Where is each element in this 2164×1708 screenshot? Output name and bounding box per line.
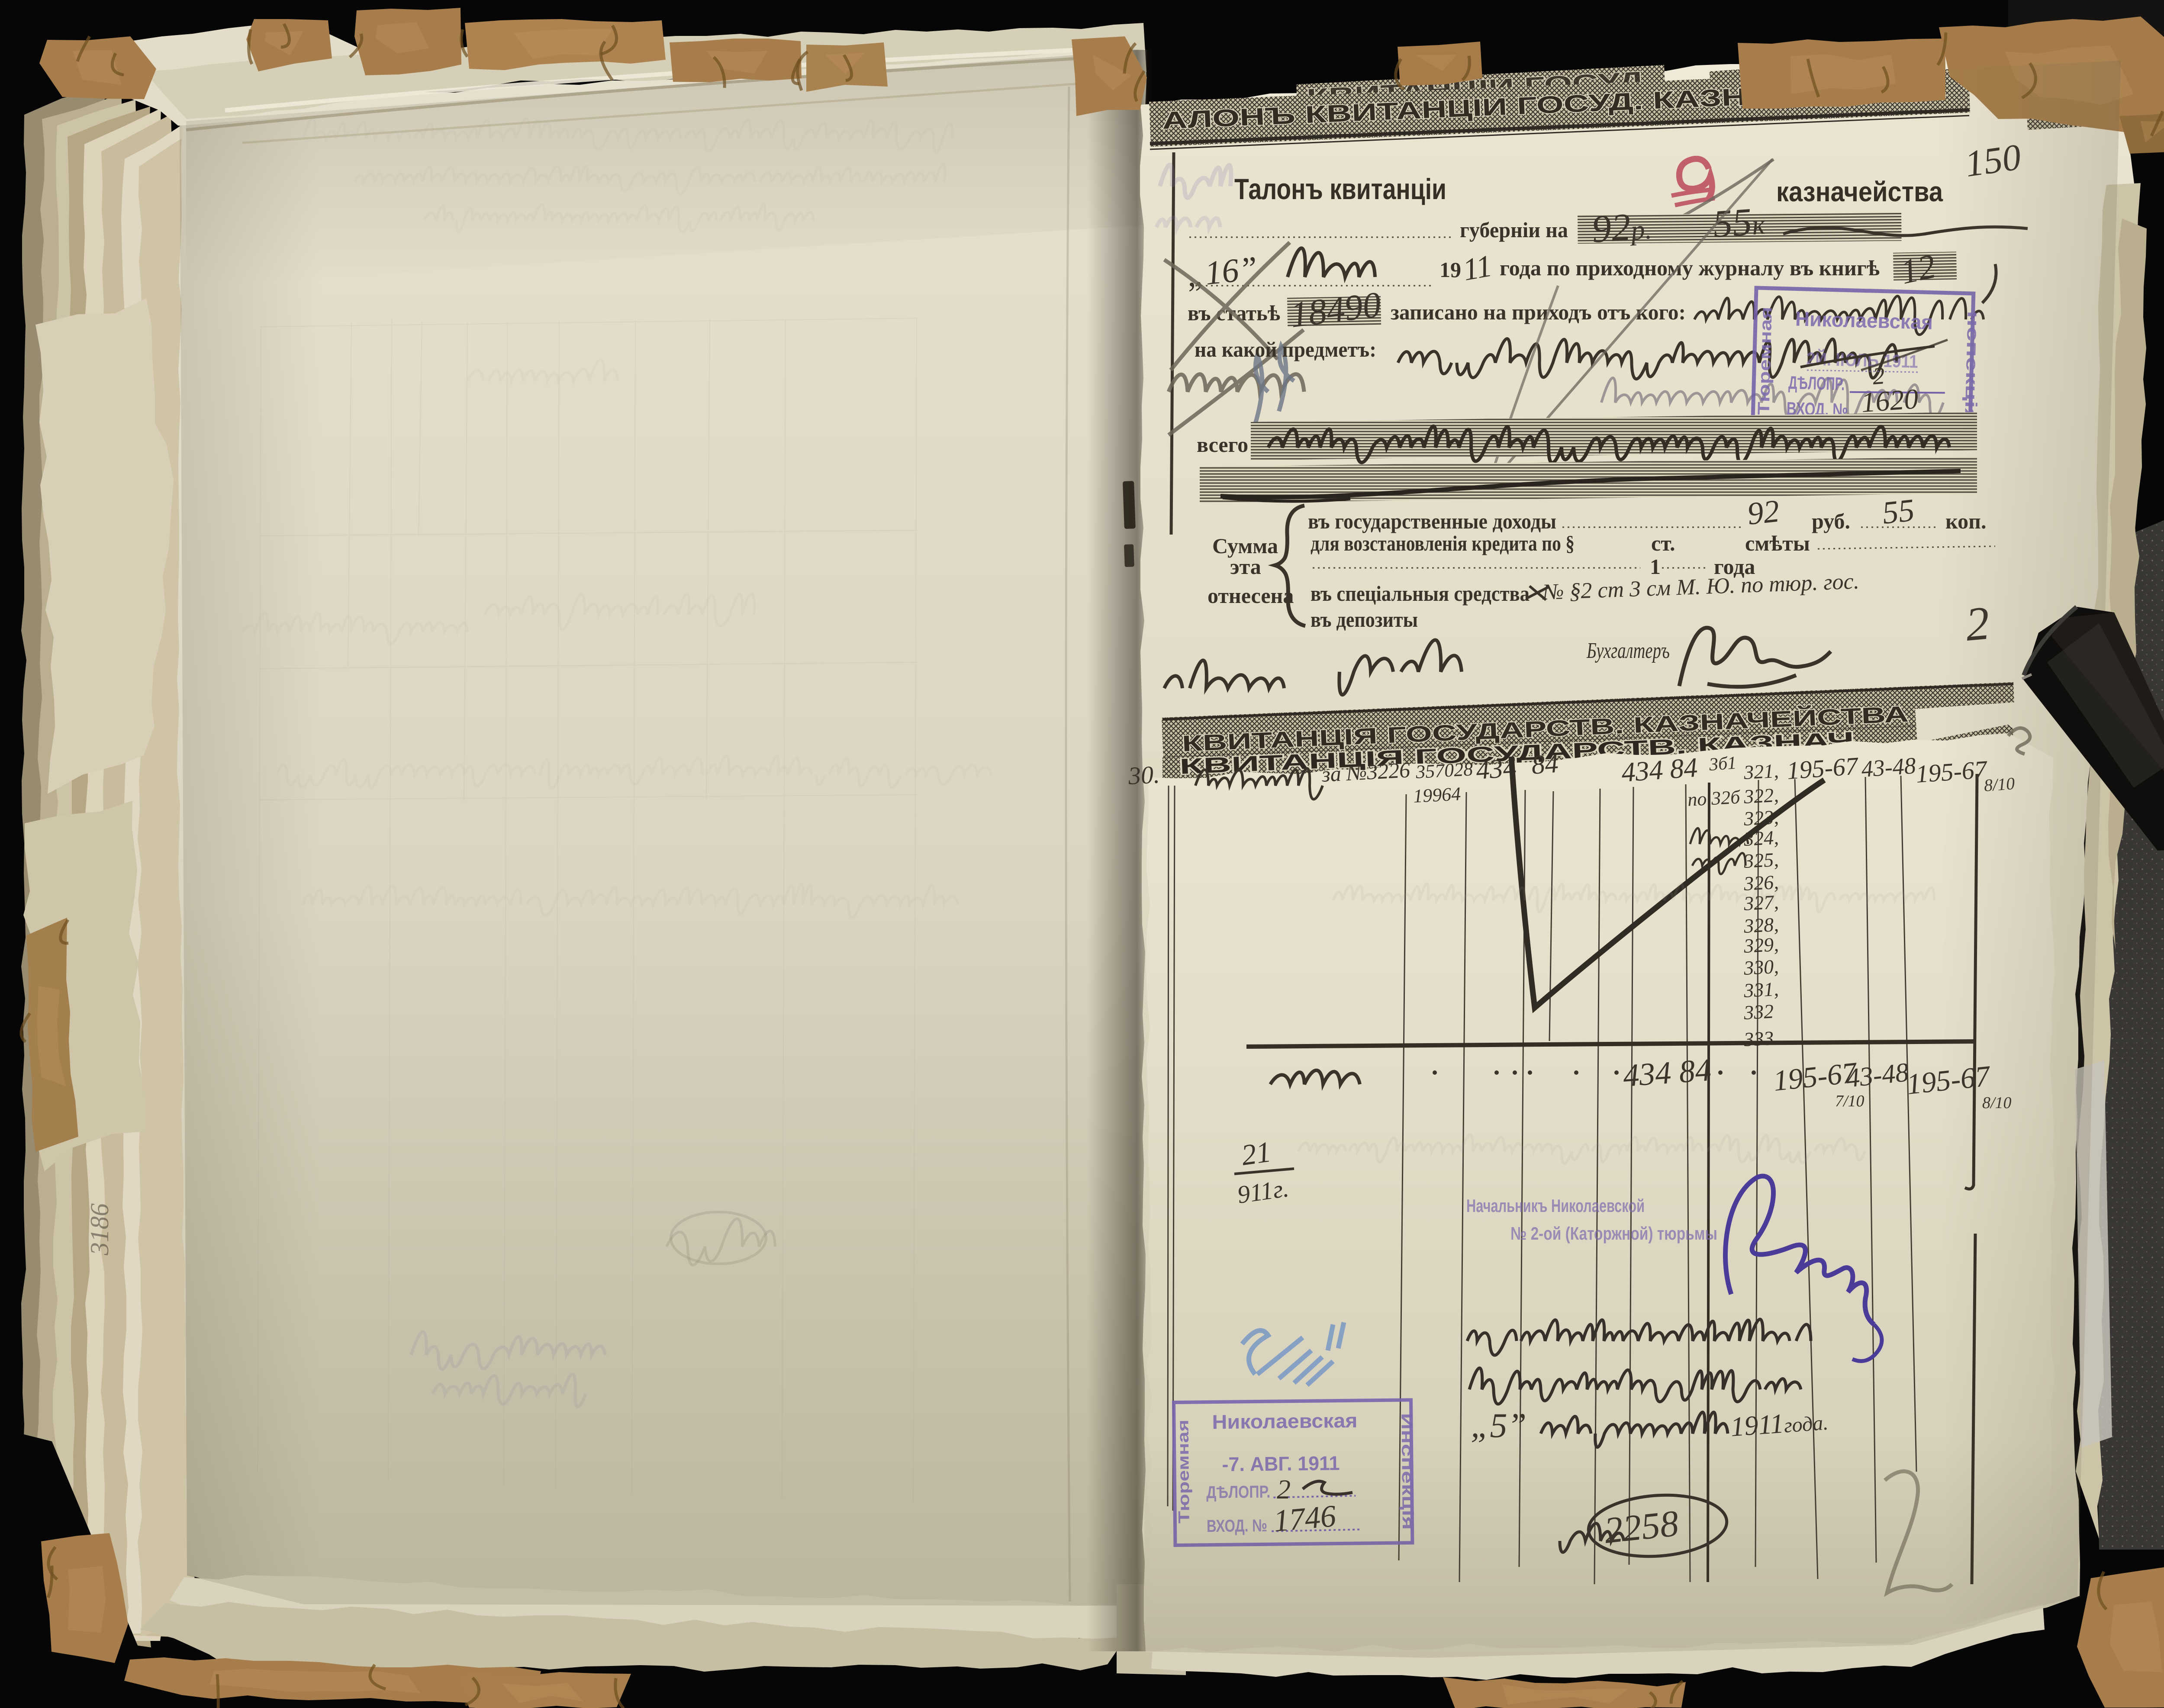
svg-text:года по приходному журналу въ: года по приходному журналу въ книгѣ [1500, 256, 1880, 280]
svg-text:за №3226: за №3226 [1321, 757, 1411, 786]
svg-text:губерніи на: губерніи на [1460, 218, 1568, 242]
svg-text:11: 11 [1460, 248, 1495, 287]
svg-text:на какой предметъ:: на какой предметъ: [1195, 337, 1376, 361]
svg-text:92: 92 [1745, 493, 1781, 532]
svg-text:отнесена: отнесена [1208, 583, 1294, 608]
svg-text:въ спеціальныя средства: въ спеціальныя средства [1311, 581, 1530, 606]
svg-text:въ депозиты: въ депозиты [1311, 607, 1418, 632]
svg-text:357028: 357028 [1415, 758, 1473, 783]
svg-text:записано на приходъ отъ кого:: записано на приходъ отъ кого: [1391, 300, 1686, 324]
svg-text:3186: 3186 [85, 1203, 114, 1256]
svg-text:3б1: 3б1 [1708, 753, 1737, 775]
svg-text:321,: 321, [1743, 760, 1779, 783]
svg-text:руб.: руб. [1812, 509, 1850, 533]
svg-text:„16”: „16” [1185, 249, 1259, 294]
svg-text:84: 84 [1530, 749, 1559, 780]
svg-text:Бухгалтеръ: Бухгалтеръ [1586, 638, 1670, 663]
svg-text:Тюремная: Тюремная [1755, 306, 1776, 415]
svg-text:30.: 30. [1127, 760, 1160, 790]
svg-text:19: 19 [1439, 258, 1461, 282]
svg-text:Талонъ квитанціи: Талонъ квитанціи [1234, 173, 1446, 206]
svg-text:434 84: 434 84 [1620, 752, 1699, 788]
svg-text:55: 55 [1881, 493, 1916, 531]
svg-text:казначейства: казначейства [1776, 176, 1943, 207]
svg-text:Николаевская: Николаевская [1795, 307, 1933, 333]
svg-text:ст.: ст. [1651, 531, 1675, 555]
svg-text:для возстановленія кредита по: для возстановленія кредита по § [1311, 531, 1575, 555]
svg-text:смѣты: смѣты [1745, 531, 1810, 555]
svg-text:эта: эта [1230, 554, 1261, 579]
svg-text:въ государственные доходы: въ государственные доходы [1308, 509, 1556, 533]
svg-text:ДѢЛОПР.: ДѢЛОПР. [1788, 372, 1845, 394]
svg-text:1: 1 [1650, 554, 1661, 579]
svg-text:43-48: 43-48 [1861, 752, 1917, 782]
svg-text:19964: 19964 [1413, 783, 1461, 807]
svg-text:всего: всего [1197, 432, 1248, 457]
